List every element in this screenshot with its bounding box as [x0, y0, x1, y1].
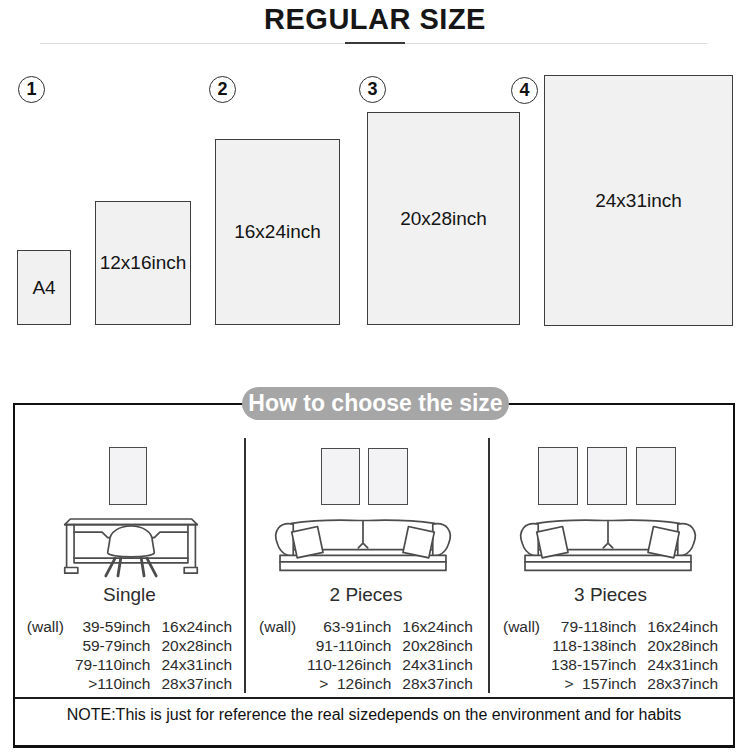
recommended-size: 20x28inch — [647, 636, 718, 655]
note-divider-line — [15, 697, 733, 699]
page-title: REGULAR SIZE — [0, 3, 750, 36]
desk-chair-illustration — [61, 515, 201, 579]
wall-frame-3p-2 — [587, 447, 627, 505]
recommended-size: 16x24inch — [402, 617, 473, 636]
recommended-size: 16x24inch — [647, 617, 718, 636]
wall-frame-single — [109, 447, 147, 505]
size-table-2pieces: (wall) 63-91inch 91-110inch 110-126inch … — [244, 617, 488, 693]
recommended-size: 24x31inch — [161, 655, 232, 674]
note-text: NOTE:This is just for reference the real… — [15, 706, 733, 724]
wall-range-column: 39-59inch 59-79inch 79-110inch >110inch — [75, 617, 151, 693]
wall-range: 91-110inch — [316, 636, 392, 655]
recommended-size: 16x24inch — [161, 617, 232, 636]
size-badge-2: 2 — [209, 76, 236, 103]
wall-range-column: 79-118inch 118-138inch 138-157inch > 157… — [551, 617, 636, 693]
size-box-12x16: 12x16inch — [95, 201, 191, 325]
wall-label: (wall) — [259, 617, 296, 693]
size-badge-4: 4 — [511, 77, 538, 104]
recommended-size-column: 16x24inch 20x28inch 24x31inch 28x37inch — [647, 617, 718, 693]
size-guide-infographic: REGULAR SIZE 1 2 3 4 A4 12x16inch 16x24i… — [0, 0, 750, 756]
recommended-size-column: 16x24inch 20x28inch 24x31inch 28x37inch — [161, 617, 232, 693]
sofa-illustration-3p — [513, 512, 703, 578]
wall-range: 79-118inch — [561, 617, 637, 636]
size-badge-3: 3 — [359, 76, 386, 103]
panel-label-3pieces: 3 Pieces — [488, 584, 733, 606]
size-box-16x24: 16x24inch — [215, 139, 340, 325]
wall-range-column: 63-91inch 91-110inch 110-126inch > 126in… — [307, 617, 391, 693]
how-to-choose-header: How to choose the size — [242, 387, 509, 420]
wall-label: (wall) — [503, 617, 540, 693]
wall-frame-2p-2 — [368, 448, 408, 505]
wall-frame-2p-1 — [321, 448, 360, 505]
title-underline-accent — [345, 42, 405, 44]
size-box-16x24-label: 16x24inch — [234, 221, 321, 243]
recommended-size-column: 16x24inch 20x28inch 24x31inch 28x37inch — [402, 617, 473, 693]
wall-range: 110-126inch — [307, 655, 391, 674]
size-box-24x31-label: 24x31inch — [595, 190, 682, 212]
wall-range: 39-59inch — [82, 617, 150, 636]
wall-range: 118-138inch — [552, 636, 636, 655]
wall-range: 138-157inch — [551, 655, 636, 674]
sofa-illustration-2p — [268, 512, 458, 578]
panel-label-single: Single — [15, 584, 244, 606]
how-to-choose-box: Single (wall) 39-59inch 59-79inch 79-110… — [13, 403, 735, 748]
wall-range: 79-110inch — [75, 655, 151, 674]
wall-frame-3p-3 — [636, 447, 676, 505]
size-box-20x28: 20x28inch — [367, 112, 520, 325]
recommended-size: 28x37inch — [402, 674, 473, 693]
recommended-size: 24x31inch — [647, 655, 718, 674]
size-box-12x16-label: 12x16inch — [100, 252, 187, 274]
size-table-3pieces: (wall) 79-118inch 118-138inch 138-157inc… — [488, 617, 733, 693]
recommended-size: 24x31inch — [402, 655, 473, 674]
size-badge-1: 1 — [18, 76, 45, 103]
wall-range: > 126inch — [319, 674, 391, 693]
wall-frame-3p-1 — [538, 447, 578, 505]
size-box-24x31: 24x31inch — [544, 75, 733, 326]
wall-range: 63-91inch — [323, 617, 391, 636]
wall-label: (wall) — [27, 617, 64, 693]
panel-label-2pieces: 2 Pieces — [244, 584, 488, 606]
recommended-size: 28x37inch — [647, 674, 718, 693]
wall-range: >110inch — [88, 674, 150, 693]
size-box-20x28-label: 20x28inch — [400, 208, 487, 230]
size-box-a4: A4 — [17, 250, 71, 325]
recommended-size: 20x28inch — [402, 636, 473, 655]
recommended-size: 28x37inch — [161, 674, 232, 693]
recommended-size: 20x28inch — [161, 636, 232, 655]
wall-range: 59-79inch — [82, 636, 150, 655]
size-table-single: (wall) 39-59inch 59-79inch 79-110inch >1… — [15, 617, 244, 693]
size-box-a4-label: A4 — [32, 277, 55, 299]
wall-range: > 157inch — [564, 674, 636, 693]
